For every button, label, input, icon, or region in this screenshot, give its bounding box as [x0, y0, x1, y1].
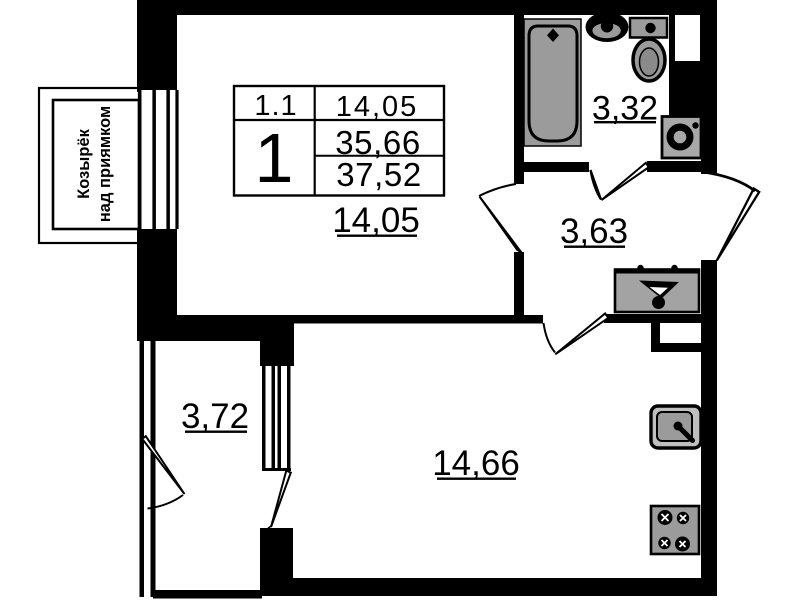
- svg-text:1.1: 1.1: [254, 90, 297, 122]
- svg-text:над приямком: над приямком: [96, 106, 114, 222]
- svg-text:Козырёк: Козырёк: [75, 128, 93, 198]
- svg-text:3,63: 3,63: [560, 212, 628, 251]
- svg-text:14,05: 14,05: [332, 201, 420, 240]
- svg-text:3,72: 3,72: [181, 397, 249, 436]
- svg-text:14,66: 14,66: [432, 444, 520, 483]
- svg-text:1: 1: [255, 119, 294, 197]
- svg-text:14,05: 14,05: [336, 91, 419, 123]
- svg-text:37,52: 37,52: [336, 156, 422, 193]
